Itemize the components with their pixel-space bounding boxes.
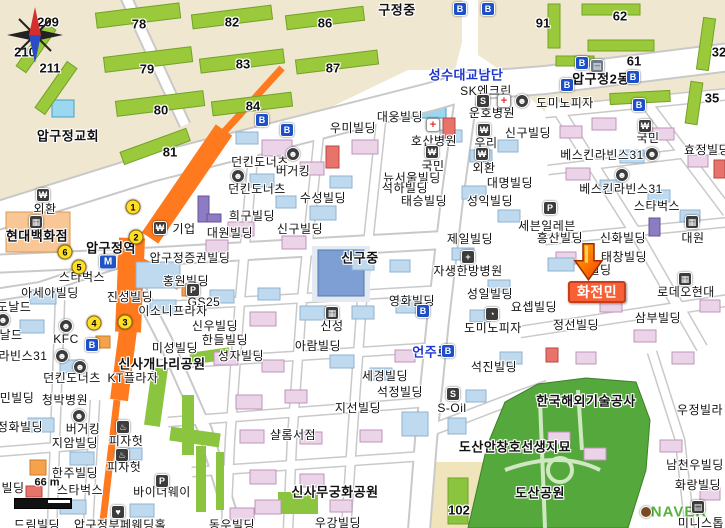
- map-scale-bar: [14, 498, 72, 509]
- place-label[interactable]: 우강빌딩: [315, 517, 361, 528]
- place-label[interactable]: 이소니프라자: [138, 305, 207, 317]
- block-number: 86: [318, 17, 332, 30]
- place-label[interactable]: 성익빌딩: [467, 195, 513, 207]
- bus-stop-icon[interactable]: B: [560, 78, 574, 92]
- subway-exit-badge[interactable]: 1: [126, 200, 141, 215]
- place-label[interactable]: 대원빌딩: [207, 227, 253, 239]
- bank-icon[interactable]: ₩: [477, 123, 491, 137]
- restaurant-icon[interactable]: ☻: [615, 168, 629, 182]
- parking-icon[interactable]: P: [543, 201, 557, 215]
- bank-icon[interactable]: ₩: [36, 188, 50, 202]
- place-label[interactable]: 로데오현대: [657, 286, 715, 298]
- place-label[interactable]: S-Oil: [437, 402, 466, 414]
- place-label[interactable]: KFC: [53, 333, 79, 345]
- place-label[interactable]: 아람빌딩: [295, 340, 341, 352]
- bus-stop-icon[interactable]: B: [416, 304, 430, 318]
- subway-exit-badge[interactable]: 5: [72, 260, 87, 275]
- place-label-fragment: 날드: [0, 329, 23, 341]
- place-label[interactable]: 피자헛: [107, 461, 142, 473]
- place-label[interactable]: 신우빌딩: [192, 320, 238, 332]
- place-label[interactable]: 동우빌딩: [209, 519, 255, 528]
- block-number: 78: [132, 18, 146, 31]
- naver-logo-icon: [640, 506, 652, 518]
- building-icon[interactable]: ▦: [685, 215, 699, 229]
- restaurant-icon[interactable]: ☻: [59, 319, 73, 333]
- block-number: 35: [705, 92, 719, 105]
- place-label[interactable]: 도미노피자: [536, 97, 594, 109]
- place-label[interactable]: 희구빌딩: [229, 210, 275, 222]
- bus-stop-icon[interactable]: B: [255, 113, 269, 127]
- area-label[interactable]: 신사무궁화공원: [291, 486, 378, 499]
- place-label[interactable]: 도미노피자: [464, 322, 522, 334]
- place-label[interactable]: 효정빌딩: [684, 144, 725, 156]
- hospital-icon[interactable]: +: [497, 94, 511, 108]
- map-canvas[interactable]: 2092102117879808182838486879162613235102…: [0, 0, 725, 528]
- gas-station-icon[interactable]: S: [476, 94, 490, 108]
- place-label[interactable]: 신구빌딩: [277, 223, 323, 235]
- block-number: 102: [448, 504, 470, 517]
- place-label[interactable]: 대원: [681, 232, 704, 244]
- place-label[interactable]: 성일빌딩: [467, 288, 513, 300]
- area-label[interactable]: 현대백화점: [6, 230, 68, 243]
- block-number: 62: [613, 10, 627, 23]
- place-label[interactable]: KT플라자: [108, 372, 159, 384]
- parking-icon[interactable]: P: [186, 283, 200, 297]
- place-label[interactable]: 던킨도너츠: [228, 183, 286, 195]
- place-label[interactable]: 운호병원: [469, 107, 515, 119]
- bus-stop-icon[interactable]: B: [453, 2, 467, 16]
- place-label[interactable]: 진성빌딩: [107, 291, 153, 303]
- place-label[interactable]: 베스킨라빈스31: [579, 183, 663, 195]
- area-label[interactable]: 압구정2동: [572, 73, 630, 86]
- place-label[interactable]: 버거킹: [66, 423, 101, 435]
- subway-exit-badge[interactable]: 6: [58, 245, 73, 260]
- area-label[interactable]: 도산안창호선생지묘: [459, 441, 571, 454]
- place-label[interactable]: 샬롬서점: [270, 429, 316, 441]
- hospital-icon[interactable]: +: [461, 250, 475, 264]
- restaurant-icon[interactable]: ☻: [73, 360, 87, 374]
- place-label[interactable]: 청박병원: [42, 394, 88, 406]
- place-label[interactable]: 제일빌딩: [447, 233, 493, 245]
- place-label[interactable]: 우정빌라: [677, 404, 723, 416]
- area-label[interactable]: 신구중: [341, 252, 378, 265]
- bus-stop-icon[interactable]: B: [575, 56, 589, 70]
- block-number: 82: [225, 16, 239, 29]
- area-label[interactable]: 도산공원: [515, 487, 565, 500]
- subway-exit-badge[interactable]: 3: [118, 315, 133, 330]
- place-label[interactable]: 피자헛: [109, 435, 144, 447]
- place-label[interactable]: 던킨도너츠: [43, 372, 101, 384]
- bus-stop-icon[interactable]: B: [85, 338, 99, 352]
- bus-stop-icon[interactable]: B: [626, 70, 640, 84]
- area-label[interactable]: 한국해외기술공사: [536, 395, 636, 408]
- hospital-icon[interactable]: +: [426, 118, 440, 132]
- place-label[interactable]: 외환: [472, 162, 495, 174]
- building-icon[interactable]: ▦: [325, 306, 339, 320]
- place-label[interactable]: 자생한방병원: [433, 265, 502, 277]
- place-label[interactable]: 우미빌딩: [330, 122, 376, 134]
- place-label[interactable]: 신구빌딩: [505, 127, 551, 139]
- place-label[interactable]: 베스킨라빈스31: [560, 149, 644, 161]
- place-label[interactable]: 태창빌딩: [601, 251, 647, 263]
- block-number: 80: [154, 104, 168, 117]
- area-label[interactable]: 압구정교회: [37, 130, 99, 143]
- block-number: 61: [627, 55, 641, 68]
- bus-stop-icon[interactable]: B: [632, 98, 646, 112]
- bank-icon[interactable]: ₩: [475, 147, 489, 161]
- block-number: 81: [163, 146, 177, 159]
- bus-stop-icon[interactable]: B: [280, 123, 294, 137]
- gas-station-icon[interactable]: S: [446, 387, 460, 401]
- place-label[interactable]: 수성빌딩: [300, 192, 346, 204]
- subway-exit-badge[interactable]: 2: [129, 230, 144, 245]
- search-result-badge[interactable]: 화전민: [568, 281, 626, 303]
- area-label[interactable]: 압구정역: [86, 242, 136, 255]
- block-number: 87: [326, 62, 340, 75]
- place-label[interactable]: 지암빌딩: [52, 437, 98, 449]
- bank-icon[interactable]: ₩: [425, 145, 439, 159]
- place-label[interactable]: 버거킹: [276, 165, 311, 177]
- convenience-store-icon[interactable]: ▤: [691, 500, 705, 514]
- restaurant-icon[interactable]: ☻: [0, 313, 10, 327]
- area-label[interactable]: 구정중: [378, 4, 415, 17]
- place-label[interactable]: 대웅빌딩: [377, 111, 423, 123]
- bus-stop-icon[interactable]: B: [441, 344, 455, 358]
- search-result-marker[interactable]: [571, 243, 605, 283]
- parking-icon[interactable]: P: [155, 474, 169, 488]
- place-label[interactable]: 스타벅스: [57, 484, 103, 496]
- place-label[interactable]: 신화빌딩: [600, 232, 646, 244]
- building-icon[interactable]: ▦: [678, 272, 692, 286]
- block-number: 91: [536, 17, 550, 30]
- dominos-pizza-icon[interactable]: ◔: [485, 307, 499, 321]
- subway-station-icon[interactable]: M: [99, 255, 117, 270]
- place-label[interactable]: 지선빌딩: [335, 402, 381, 414]
- place-label[interactable]: 외환: [33, 203, 56, 215]
- place-label-fragment: 정화빌딩: [0, 421, 43, 433]
- place-label[interactable]: 한들빌딩: [202, 334, 248, 346]
- bank-icon[interactable]: ₩: [153, 221, 167, 235]
- district-office-icon[interactable]: ▤: [590, 59, 604, 73]
- place-label[interactable]: 대명빌딩: [487, 177, 533, 189]
- place-label-fragment: 민빌딩: [0, 392, 34, 404]
- place-label[interactable]: 신성: [320, 320, 343, 332]
- restaurant-icon[interactable]: ☻: [72, 409, 86, 423]
- place-label[interactable]: 화랑빌딩: [675, 479, 721, 491]
- place-label[interactable]: 압구정부페웨딩홀: [74, 519, 166, 528]
- place-label[interactable]: 성자빌딩: [218, 350, 264, 362]
- block-number: 32: [712, 46, 725, 59]
- place-label-fragment: 빌딩: [1, 482, 24, 494]
- department-store-icon[interactable]: ▦: [29, 215, 43, 229]
- place-label-fragment: 도날드: [0, 301, 31, 313]
- place-label[interactable]: 삼부빌딩: [635, 312, 681, 324]
- place-label[interactable]: 드림빌딩: [14, 519, 60, 528]
- compass-rose: [6, 6, 64, 64]
- restaurant-icon[interactable]: ☻: [231, 169, 245, 183]
- place-label[interactable]: 스타벅스: [634, 200, 680, 212]
- area-label[interactable]: 신사개나리공원: [118, 358, 205, 371]
- bank-icon[interactable]: ₩: [638, 119, 652, 133]
- pizzahut-icon[interactable]: ♨: [116, 420, 130, 434]
- block-number: 79: [140, 63, 154, 76]
- wedding-hall-icon[interactable]: ♥: [111, 505, 125, 519]
- restaurant-icon[interactable]: ☻: [286, 147, 300, 161]
- subway-exit-badge[interactable]: 4: [87, 316, 102, 331]
- place-label[interactable]: 정선빌딩: [553, 319, 599, 331]
- restaurant-icon[interactable]: ☻: [515, 94, 529, 108]
- place-label[interactable]: 석진빌딩: [471, 361, 517, 373]
- place-label-fragment: 라빈스31: [0, 350, 47, 362]
- block-number: 83: [236, 58, 250, 71]
- pizzahut-icon[interactable]: ♨: [115, 448, 129, 462]
- place-label[interactable]: 국민: [636, 132, 659, 144]
- map-overlay: 2092102117879808182838486879162613235102…: [0, 0, 725, 528]
- map-scale-label: 66 m: [34, 478, 59, 489]
- restaurant-icon[interactable]: ☻: [55, 349, 69, 363]
- place-label[interactable]: 태승빌딩: [401, 195, 447, 207]
- place-label[interactable]: 아세아빌딩: [21, 287, 79, 299]
- place-label[interactable]: 요셉빌딩: [511, 301, 557, 313]
- bus-stop-icon[interactable]: B: [481, 2, 495, 16]
- place-label[interactable]: 석정빌딩: [377, 386, 423, 398]
- place-label[interactable]: 압구정증권빌딩: [150, 252, 231, 264]
- place-label[interactable]: 남천우빌딩: [666, 459, 724, 471]
- place-label[interactable]: 기업: [172, 223, 195, 235]
- road-name-label: 성수대교남단: [429, 69, 504, 82]
- restaurant-icon[interactable]: ☻: [645, 147, 659, 161]
- place-label[interactable]: 석하빌딩: [382, 182, 428, 194]
- place-label[interactable]: 세경빌딩: [362, 370, 408, 382]
- block-number: 84: [246, 100, 260, 113]
- place-label[interactable]: 미성빌딩: [152, 342, 198, 354]
